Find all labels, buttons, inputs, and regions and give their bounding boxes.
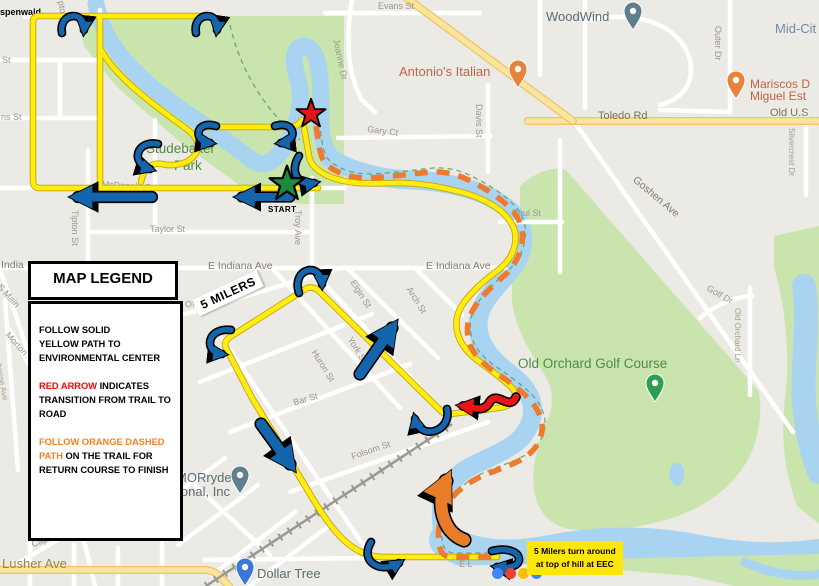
legend-line: FOLLOW ORANGE DASHED [39, 436, 180, 450]
legend-line: FOLLOW SOLID [39, 324, 180, 338]
legend-line: TRANSITION FROM TRAIL TO [39, 394, 180, 408]
map-canvas[interactable]: spenwaldEvans StWoodWindMid-CitOuter DrJ… [0, 0, 819, 586]
google-logo-dot [492, 568, 503, 579]
direction-arrow-southeast-elizabeth [261, 424, 290, 464]
legend-line: RETURN COURSE TO FINISH [39, 464, 180, 478]
legend-line: ENVIRONMENTAL CENTER [39, 352, 180, 366]
start-label: START [268, 205, 297, 214]
legend-body: FOLLOW SOLIDYELLOW PATH TOENVIRONMENTAL … [28, 301, 183, 541]
legend-title: MAP LEGEND [28, 261, 178, 300]
legend-line: RED ARROW INDICATES [39, 380, 180, 394]
google-logo-dot [505, 568, 516, 579]
legend-block: FOLLOW ORANGE DASHEDPATH ON THE TRAIL FO… [39, 436, 180, 478]
legend-line: PATH ON THE TRAIL FOR [39, 450, 180, 464]
turnaround-note-line1: 5 Milers turn around [534, 545, 616, 558]
turnaround-note-line2: at top of hill at EEC [534, 558, 616, 571]
turnaround-note: 5 Milers turn around at top of hill at E… [527, 541, 623, 575]
legend-line: YELLOW PATH TO [39, 338, 180, 352]
legend-block: RED ARROW INDICATESTRANSITION FROM TRAIL… [39, 380, 180, 422]
legend-line: ROAD [39, 408, 180, 422]
map-legend: MAP LEGEND FOLLOW SOLIDYELLOW PATH TOENV… [28, 261, 183, 541]
legend-block: FOLLOW SOLIDYELLOW PATH TOENVIRONMENTAL … [39, 324, 180, 366]
route-path-orange-dashed [316, 126, 542, 557]
